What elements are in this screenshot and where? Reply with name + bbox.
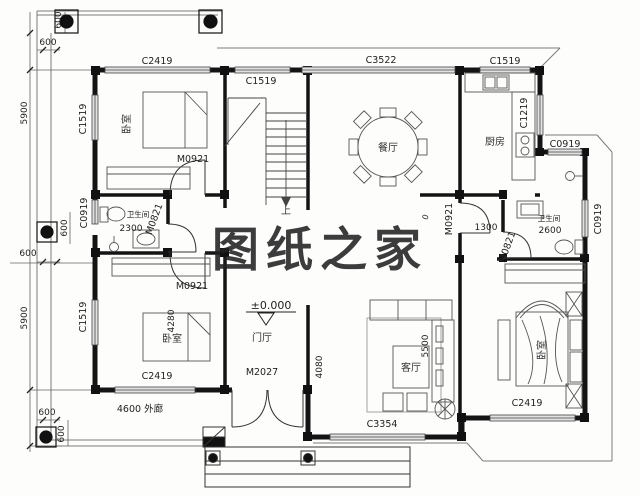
dim-4080: 4080 bbox=[315, 355, 325, 378]
floor-plan-page: 图纸之家 卧室 卧室 卧室 餐厅 厨房 客厅 门厅 卫生间 卫生间 上 ±0.0… bbox=[0, 0, 640, 495]
win-c1519-left-bottom: C1519 bbox=[78, 302, 89, 333]
dim-600-top-h: 600 bbox=[39, 38, 56, 48]
porch-label: 4600 外廊 bbox=[117, 403, 164, 415]
win-c1519-left-top: C1519 bbox=[78, 104, 89, 135]
room-kitchen: 厨房 bbox=[485, 135, 505, 148]
dim-5900-top: 5900 bbox=[20, 101, 30, 124]
win-c2419-top: C2419 bbox=[142, 56, 173, 67]
dim-2300: 2300 bbox=[120, 224, 143, 234]
door-m2027: M2027 bbox=[246, 367, 278, 378]
dim-5900-bottom: 5900 bbox=[20, 306, 30, 329]
dim-1300: 1300 bbox=[475, 223, 498, 233]
stairs bbox=[225, 98, 306, 206]
door-m0821-left: M0821 bbox=[144, 202, 165, 236]
dim-5500: 5500 bbox=[421, 334, 431, 357]
win-c0919-bath-top: C0919 bbox=[550, 139, 581, 150]
win-c3522: C3522 bbox=[366, 55, 397, 66]
level-label: ±0.000 bbox=[251, 299, 292, 312]
win-c3354: C3354 bbox=[367, 419, 398, 430]
dim-600-top-v: 600 bbox=[54, 11, 64, 28]
door-m0921-tl: M0921 bbox=[177, 154, 209, 165]
dim-4280: 4280 bbox=[167, 309, 177, 332]
dim-600-bot-h: 600 bbox=[38, 408, 55, 418]
room-dining: 餐厅 bbox=[378, 141, 398, 154]
win-c1219: C1219 bbox=[519, 98, 530, 129]
win-c0919-right: C0919 bbox=[593, 204, 604, 235]
win-c2419-bottom-right: C2419 bbox=[512, 398, 543, 409]
win-c1519-stair: C1519 bbox=[246, 76, 277, 87]
dim-0: 0 bbox=[421, 213, 431, 221]
dim-600-bot-v: 600 bbox=[57, 425, 67, 442]
door-m0921-bl: M0921 bbox=[176, 281, 208, 292]
room-bath-right: 卫生间 bbox=[538, 213, 561, 223]
room-bedroom-bl: 卧室 bbox=[162, 332, 182, 345]
level-mark bbox=[246, 312, 296, 325]
room-living: 客厅 bbox=[401, 361, 421, 374]
dim-600-mid-v: 600 bbox=[60, 219, 70, 236]
floor-plan-drawing: 图纸之家 卧室 卧室 卧室 餐厅 厨房 客厅 门厅 卫生间 卫生间 上 ±0.0… bbox=[0, 0, 640, 495]
dim-600-mid-h: 600 bbox=[19, 249, 36, 259]
win-c0919-left: C0919 bbox=[79, 198, 90, 229]
door-m0921-hall: M0921 bbox=[444, 203, 455, 235]
room-bedroom-tl: 卧室 bbox=[120, 114, 133, 134]
stairs-up-label: 上 bbox=[281, 205, 291, 217]
dim-2600: 2600 bbox=[539, 226, 562, 236]
watermark-text: 图纸之家 bbox=[212, 223, 428, 278]
room-foyer: 门厅 bbox=[252, 331, 272, 344]
room-bedroom-br: 卧室 bbox=[535, 340, 548, 360]
win-c1519-kitchen: C1519 bbox=[490, 56, 521, 67]
room-bath-left: 卫生间 bbox=[127, 209, 150, 219]
win-c2419-bottom-left: C2419 bbox=[142, 371, 173, 382]
